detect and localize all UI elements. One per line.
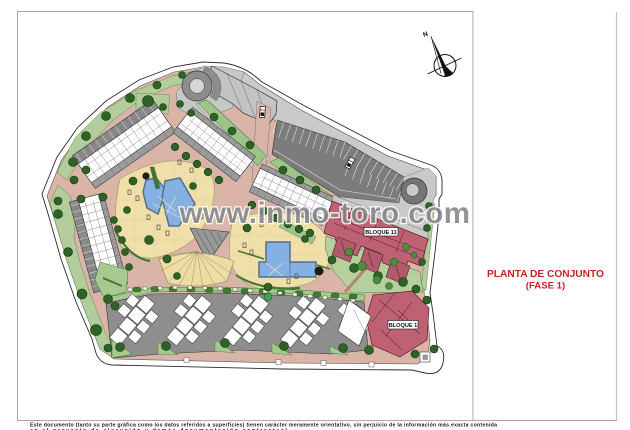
svg-text:(FASE 1): (FASE 1) [526,281,565,292]
svg-text:PLANTA DE CONJUNTO: PLANTA DE CONJUNTO [487,269,604,280]
svg-text:BLOQUE 11: BLOQUE 11 [365,230,396,236]
svg-text:www.inmo-toro.com: www.inmo-toro.com [179,197,471,230]
svg-text:BLOQUE 1: BLOQUE 1 [389,323,418,329]
